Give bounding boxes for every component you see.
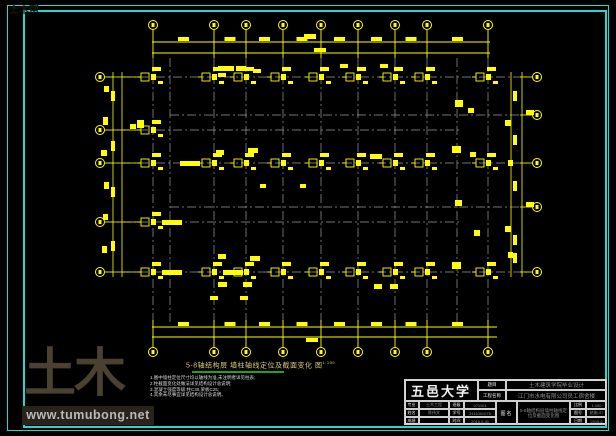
watermark-url: www.tumubong.net xyxy=(22,406,154,425)
drawing-name-label: 图名 xyxy=(496,401,517,425)
drawing-title-scale: 1:100 xyxy=(323,360,336,365)
drawing-name-value: 5-8轴结构层墙柱轴线定位及截面变化图 xyxy=(517,401,570,425)
drawing-title: 5-8轴结构层 墙柱轴线定位及截面变化 图1:100 xyxy=(186,360,335,370)
notes-block: 1.图中墙柱定位尺寸均以轴线为准,未注明者详见柱表; 2.柱截面变化处做法详见结… xyxy=(150,375,255,398)
cad-drawing-sheet: 5-8轴结构层 墙柱轴线定位及截面变化 图1:100 1.图中墙柱定位尺寸均以轴… xyxy=(0,0,616,436)
project-label-1: 题目 xyxy=(478,379,506,390)
meta-label: 图号 xyxy=(570,409,586,417)
info-value: 071101 xyxy=(464,401,496,409)
info-label: 姓名 xyxy=(404,409,419,417)
info-value xyxy=(419,417,449,425)
info-value: 陈伟文 xyxy=(419,409,449,417)
drawing-title-text: 5-8轴结构层 墙柱轴线定位及截面变化 图 xyxy=(186,362,323,369)
info-label: 班级 xyxy=(449,401,464,409)
project-value-2: 江门市水电有限公司员工宿舍楼 xyxy=(506,390,607,401)
info-value: 3111001078 xyxy=(464,409,496,417)
meta-value: 2015.6 xyxy=(586,417,607,425)
watermark-brand: 土木帮 xyxy=(24,342,154,408)
info-value: 土木工程 xyxy=(419,401,449,409)
note-line: 1.图中墙柱定位尺寸均以轴线为准,未注明者详见柱表; xyxy=(150,375,255,381)
watermark-brand-faint: 土木帮 xyxy=(9,1,39,16)
meta-value: 结施-07 xyxy=(586,409,607,417)
meta-label: 比例 xyxy=(570,401,586,409)
university-name: 五邑大学 xyxy=(404,379,478,401)
info-value: 2015.5.30 xyxy=(464,417,496,425)
info-label: 时间 xyxy=(449,417,464,425)
project-label-2: 工程名称 xyxy=(478,390,506,401)
info-label: 成绩 xyxy=(404,417,419,425)
project-value-1: 土木建筑学院毕业设计 xyxy=(506,379,607,390)
meta-label: 日期 xyxy=(570,417,586,425)
meta-value: 1:100 xyxy=(586,401,607,409)
title-underline xyxy=(192,371,284,373)
info-label: 学号 xyxy=(449,409,464,417)
info-label: 专业 xyxy=(404,401,419,409)
note-line: 4.其余未尽事宜详见结构设计总说明。 xyxy=(150,392,255,398)
